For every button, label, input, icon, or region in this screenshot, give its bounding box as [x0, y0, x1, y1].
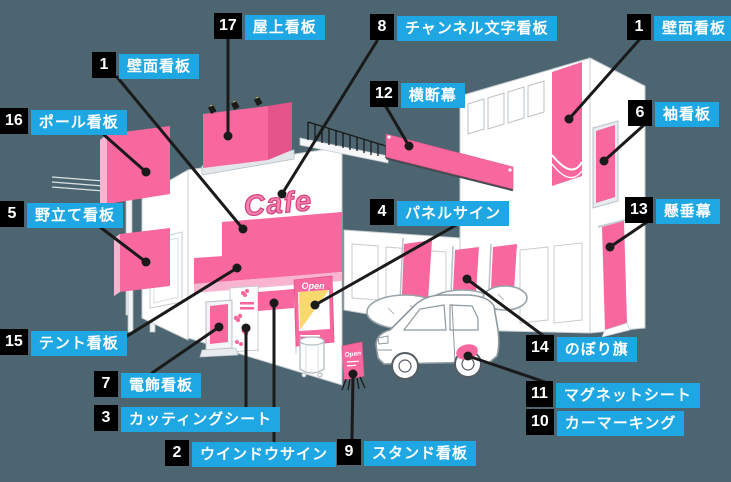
- label-hanging-banner: 13 懸垂幕: [625, 197, 720, 224]
- label-illuminated-sign: 7 電飾看板: [94, 371, 201, 398]
- label-number: 11: [526, 381, 553, 407]
- label-text: チャンネル文字看板: [397, 16, 557, 41]
- label-field-sign: 5 野立て看板: [0, 201, 123, 228]
- label-number: 15: [0, 329, 28, 355]
- label-number: 7: [94, 371, 118, 397]
- label-number: 14: [526, 335, 554, 361]
- label-wall-sign-right: 1 壁面看板: [627, 14, 731, 41]
- trash-bin: [300, 337, 324, 377]
- label-channel-letter-sign: 8 チャンネル文字看板: [370, 14, 557, 41]
- label-text: スタンド看板: [364, 441, 476, 466]
- car-headlight: [378, 336, 388, 344]
- label-number: 3: [94, 405, 118, 431]
- label-text: ポール看板: [31, 110, 127, 135]
- label-number: 16: [0, 108, 28, 134]
- label-text: カッティングシート: [121, 407, 280, 432]
- label-wall-sign-left: 1 壁面看板: [92, 52, 199, 79]
- label-text: 袖看板: [655, 102, 719, 127]
- label-text: 懸垂幕: [656, 199, 720, 224]
- label-number: 6: [628, 100, 652, 126]
- label-number: 2: [165, 440, 189, 466]
- car-rear-window: [450, 305, 478, 330]
- label-text: 電飾看板: [121, 373, 201, 398]
- label-rooftop-sign: 17 屋上看板: [214, 13, 325, 40]
- label-tent-sign: 15 テント看板: [0, 329, 127, 356]
- label-text: 野立て看板: [27, 203, 123, 228]
- label-number: 17: [214, 13, 242, 39]
- label-car-marking: 10 カーマーキング: [526, 409, 684, 436]
- label-stand-sign: 9 スタンド看板: [337, 439, 476, 466]
- corner-wall-sign: [552, 62, 582, 186]
- panel-sign-text: Open: [301, 281, 325, 291]
- label-number: 10: [526, 409, 554, 435]
- panel-sign: Open: [294, 276, 334, 346]
- label-text: 壁面看板: [119, 54, 199, 79]
- label-panel-sign: 4 パネルサイン: [370, 199, 509, 226]
- label-text: ウインドウサイン: [192, 442, 336, 467]
- leader-line-9: [352, 374, 353, 439]
- label-number: 13: [625, 197, 653, 223]
- label-number: 1: [92, 52, 116, 78]
- label-number: 4: [370, 199, 394, 225]
- label-text: 横断幕: [401, 83, 465, 108]
- label-text: 屋上看板: [245, 15, 325, 40]
- label-window-sign: 2 ウインドウサイン: [165, 440, 336, 467]
- label-text: 壁面看板: [654, 16, 731, 41]
- label-nobori-flag: 14 のぼり旗: [526, 335, 637, 362]
- car-front-wheel: [392, 353, 418, 379]
- label-magnet-sheet: 11 マグネットシート: [526, 381, 700, 408]
- cutting-sheet-decals: [230, 286, 258, 352]
- label-number: 1: [627, 14, 651, 40]
- label-text: マグネットシート: [556, 383, 700, 408]
- label-text: テント看板: [31, 331, 127, 356]
- label-cross-banner: 12 横断幕: [370, 81, 465, 108]
- label-text: カーマーキング: [557, 411, 685, 436]
- label-projecting-sign: 6 袖看板: [628, 100, 719, 127]
- label-number: 12: [370, 81, 398, 107]
- label-number: 8: [370, 14, 394, 40]
- label-number: 5: [0, 201, 24, 227]
- label-number: 9: [337, 439, 361, 465]
- label-cutting-sheet: 3 カッティングシート: [94, 405, 280, 432]
- label-text: パネルサイン: [397, 201, 509, 226]
- signage-diagram: Cafe Open: [0, 0, 731, 482]
- label-text: のぼり旗: [557, 337, 637, 362]
- channel-letter-sign: Cafe: [243, 185, 314, 223]
- label-pole-sign: 16 ポール看板: [0, 108, 127, 135]
